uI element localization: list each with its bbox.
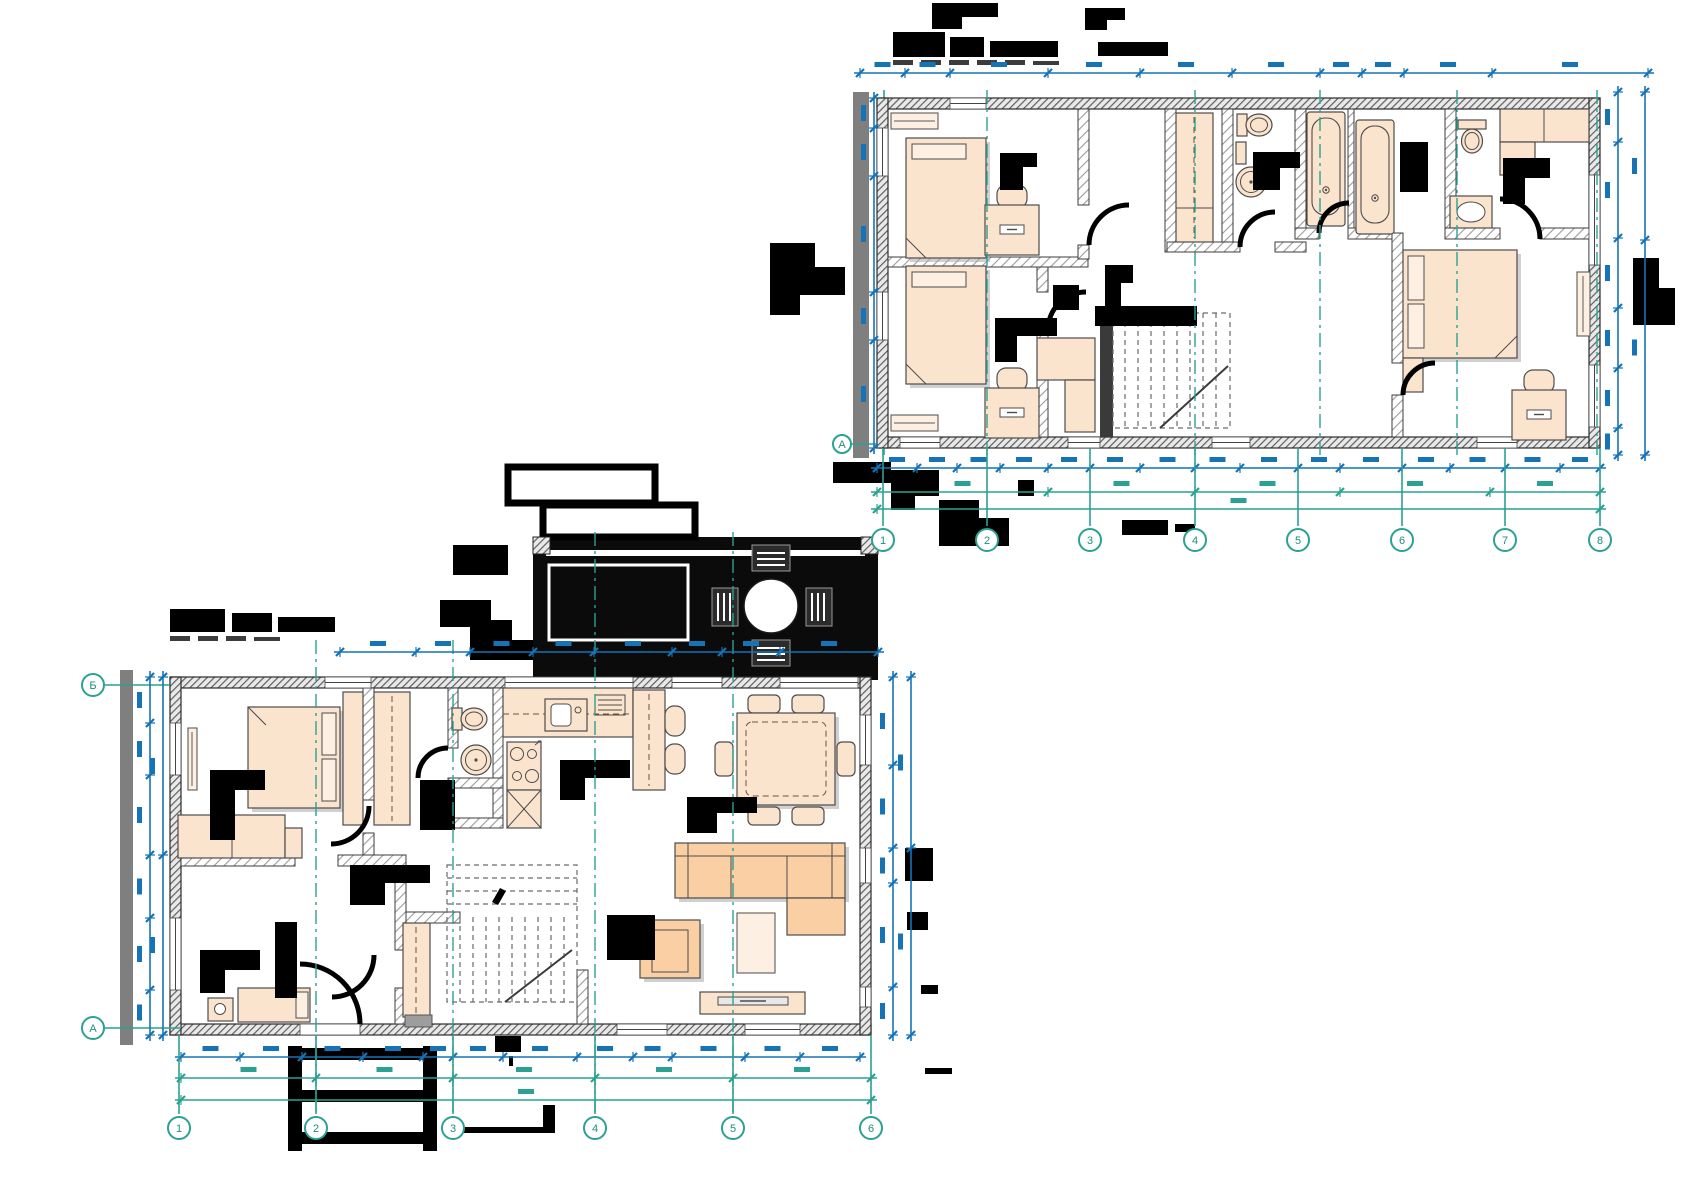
wc-washbasin xyxy=(461,745,491,775)
terrace-post-1 xyxy=(533,537,550,554)
terrace-chair-north xyxy=(752,545,790,571)
wc-toilet xyxy=(452,708,487,730)
floor1-room-label-blobs xyxy=(200,760,952,1133)
floor1-plan: Б А xyxy=(82,462,1034,1151)
svg-text:4: 4 xyxy=(592,1123,598,1135)
bathtub-2 xyxy=(1356,120,1394,234)
terrace-chair-east xyxy=(806,588,832,626)
kitchen-island xyxy=(633,690,665,790)
bedroom-wardrobe xyxy=(343,692,363,825)
floor2-furniture xyxy=(891,109,1590,440)
mirror xyxy=(188,728,197,790)
entry-closet xyxy=(403,923,430,1017)
tv-console xyxy=(700,992,805,1014)
annotation-blob-2 xyxy=(891,470,939,510)
dimension-chains xyxy=(137,62,1654,1114)
floor2-title-blob xyxy=(893,32,1168,65)
svg-text:1: 1 xyxy=(176,1123,182,1135)
single-bed-1 xyxy=(906,138,990,262)
coffee-table xyxy=(737,913,775,973)
annotation-blob-4 xyxy=(1018,480,1034,496)
svg-text:Б: Б xyxy=(89,680,96,692)
floor1-staircase xyxy=(447,865,577,1002)
master-desk-with-chair xyxy=(1512,370,1566,440)
floor1-left-gray-band xyxy=(120,670,133,1045)
floor1-title-blob xyxy=(170,600,472,641)
svg-text:7: 7 xyxy=(1502,535,1508,547)
hall-wardrobe xyxy=(374,692,410,825)
master-toilet xyxy=(1458,120,1486,153)
svg-text:4: 4 xyxy=(1192,535,1198,547)
double-bed-master xyxy=(1403,250,1521,362)
svg-text:2: 2 xyxy=(984,535,990,547)
terrace-steps-blob xyxy=(470,600,533,660)
svg-text:2: 2 xyxy=(313,1123,319,1135)
floor2-plan: А xyxy=(770,3,1675,535)
master-mirror xyxy=(1577,272,1590,336)
floor1-row-bubble-top: Б xyxy=(82,674,104,696)
terrace xyxy=(453,462,1034,680)
svg-text:5: 5 xyxy=(730,1123,736,1135)
terrace-label-blob xyxy=(453,545,508,575)
desk-with-chair-1 xyxy=(985,185,1039,255)
dresser xyxy=(178,815,302,858)
planter-box-1 xyxy=(508,467,655,503)
bathtub-1 xyxy=(1307,112,1345,226)
side-table xyxy=(208,998,233,1021)
round-terrace-table xyxy=(744,579,798,633)
doormat xyxy=(405,1015,432,1027)
floor-plan-drawing: А xyxy=(0,0,1684,1191)
svg-text:А: А xyxy=(838,439,846,451)
bar-stool-1 xyxy=(665,706,685,736)
svg-text:3: 3 xyxy=(1087,535,1093,547)
wc-toilet xyxy=(1237,114,1272,136)
desk-with-chair-2 xyxy=(985,368,1039,438)
planter-box-2 xyxy=(543,505,695,537)
svg-text:6: 6 xyxy=(1399,535,1405,547)
svg-text:6: 6 xyxy=(868,1123,874,1135)
cooktop xyxy=(507,741,541,790)
svg-text:3: 3 xyxy=(450,1123,456,1135)
floor2-staircase xyxy=(1095,306,1230,428)
svg-text:8: 8 xyxy=(1597,535,1603,547)
single-bed-back-room xyxy=(238,988,310,1022)
kitchen-counter xyxy=(503,688,633,737)
double-bed xyxy=(248,707,344,812)
bar-stool-2 xyxy=(665,744,685,774)
terrace-chair-west xyxy=(712,588,738,626)
floor2-row-bubble: А xyxy=(833,435,851,453)
floor1-row-bubble-bottom: А xyxy=(82,1017,104,1039)
oven-cabinet xyxy=(507,790,541,828)
grid-column-bubbles: 1 2 3 4 5 6 7 8 1 2 3 4 5 6 xyxy=(168,529,1611,1139)
svg-text:5: 5 xyxy=(1295,535,1301,547)
svg-text:А: А xyxy=(89,1023,97,1035)
single-bed-2 xyxy=(906,266,990,388)
wc-shelf xyxy=(1236,142,1246,164)
svg-text:1: 1 xyxy=(880,535,886,547)
floor2-section-flag-icon xyxy=(932,3,1125,30)
